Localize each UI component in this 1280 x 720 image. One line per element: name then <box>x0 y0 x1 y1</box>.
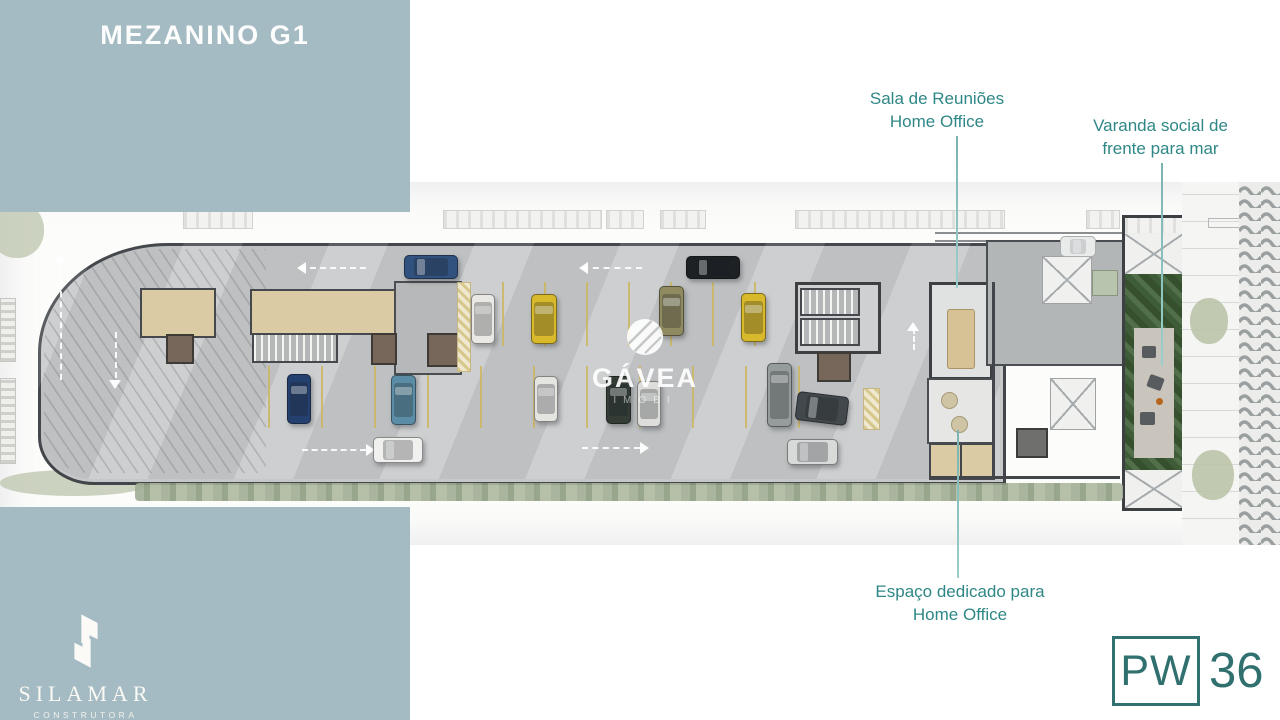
project-number: 36 <box>1209 643 1264 699</box>
annotation-line: frente para mar <box>1058 137 1263 160</box>
leader-line <box>956 136 958 288</box>
stair-core <box>795 282 881 354</box>
presentation-slide: { "header": { "title": "MEZANINO G1" }, … <box>0 0 1280 720</box>
ramp-arrow-head <box>54 248 66 263</box>
facade-rib <box>795 210 1005 229</box>
paved-patio <box>1125 470 1183 508</box>
car <box>373 437 423 463</box>
annotation-line: Varanda social de <box>1058 114 1263 137</box>
silamar-logo-icon <box>57 610 115 672</box>
builder-name: SILAMAR <box>8 681 163 707</box>
walkway <box>1182 182 1239 545</box>
lane-arrow <box>300 267 366 269</box>
car <box>391 375 416 425</box>
garden-square <box>1092 270 1118 296</box>
lane-arrow <box>913 328 915 350</box>
bench <box>1208 218 1240 228</box>
hedge-strip <box>135 483 1123 501</box>
hatched-zone <box>457 282 471 372</box>
leader-line <box>1161 163 1163 366</box>
car <box>1060 236 1096 257</box>
skylight <box>1050 378 1096 430</box>
lane-arrow <box>582 447 640 449</box>
elevator <box>427 333 461 367</box>
car <box>741 293 766 342</box>
facade-rib <box>606 210 644 229</box>
curb-hatch <box>0 298 16 362</box>
staircase <box>800 288 860 316</box>
pergola <box>1125 218 1183 233</box>
car <box>404 255 458 279</box>
facade-rib <box>1086 210 1120 229</box>
planting <box>1125 458 1183 470</box>
elevator <box>1016 428 1048 458</box>
builder-tagline: CONSTRUTORA <box>8 710 163 720</box>
wave-pattern-sidewalk <box>1239 182 1280 545</box>
facade-rib <box>183 210 253 229</box>
facade-rib <box>660 210 706 229</box>
annotation-meeting-room: Sala de Reuniões Home Office <box>837 87 1037 133</box>
car <box>794 391 849 426</box>
wall <box>930 476 1120 479</box>
hatched-zone <box>863 388 880 430</box>
shrub <box>1190 298 1228 344</box>
builder-logo: SILAMAR CONSTRUTORA <box>8 610 163 720</box>
restrooms <box>929 443 995 480</box>
car <box>531 294 557 344</box>
floor-plan <box>0 182 1280 545</box>
room-block <box>140 288 216 338</box>
home-office-space <box>927 378 995 444</box>
room-block <box>986 240 1124 366</box>
planting <box>1125 328 1134 458</box>
car <box>659 286 684 336</box>
annotation-line: Espaço dedicado para <box>850 580 1070 603</box>
terrace-furniture <box>1146 374 1165 391</box>
lane-arrow-head <box>907 316 919 331</box>
annotation-home-office: Espaço dedicado para Home Office <box>850 580 1070 626</box>
planting <box>1125 274 1183 328</box>
page-title: MEZANINO G1 <box>0 20 410 51</box>
ramp-hatch <box>44 249 266 473</box>
terrace-furniture <box>1140 412 1155 425</box>
elevator <box>166 334 194 364</box>
curb-hatch <box>0 378 16 464</box>
social-balcony <box>1122 215 1186 511</box>
lane-arrow-head <box>573 262 588 274</box>
annotation-balcony: Varanda social de frente para mar <box>1058 114 1263 160</box>
car <box>767 363 792 427</box>
elevator <box>817 352 851 382</box>
car <box>606 376 631 424</box>
car <box>787 439 838 465</box>
ramp-arrow <box>115 332 117 378</box>
round-table <box>951 416 968 433</box>
annotation-line: Home Office <box>837 110 1037 133</box>
room-block <box>250 289 400 335</box>
ramp-arrow <box>60 260 62 380</box>
round-table <box>941 392 958 409</box>
lane-arrow <box>582 267 642 269</box>
leader-line <box>957 430 959 578</box>
skylight <box>1125 234 1183 274</box>
terrace-furniture <box>1142 346 1156 358</box>
wall <box>992 282 995 478</box>
ramp-arrow-head <box>109 380 121 395</box>
conference-table <box>947 309 975 369</box>
lane-arrow-head <box>640 442 655 454</box>
elevator <box>371 333 397 365</box>
shrub <box>1192 450 1234 500</box>
annotation-line: Home Office <box>850 603 1070 626</box>
car <box>287 374 311 424</box>
staircase <box>800 318 860 346</box>
car <box>534 376 558 422</box>
lane-arrow-head <box>291 262 306 274</box>
car <box>471 294 495 344</box>
skylight <box>1042 256 1092 304</box>
terrace-table <box>1156 398 1163 405</box>
car <box>686 256 740 279</box>
project-initials-box: PW <box>1112 636 1200 706</box>
terrace <box>1134 328 1174 458</box>
project-logo: PW 36 <box>1112 636 1264 706</box>
staircase <box>252 333 338 363</box>
car <box>637 381 661 427</box>
annotation-line: Sala de Reuniões <box>837 87 1037 110</box>
title-panel: MEZANINO G1 <box>0 0 410 212</box>
lane-arrow <box>302 449 366 451</box>
wall <box>960 445 962 478</box>
meeting-room <box>929 282 993 380</box>
facade-rib <box>443 210 602 229</box>
